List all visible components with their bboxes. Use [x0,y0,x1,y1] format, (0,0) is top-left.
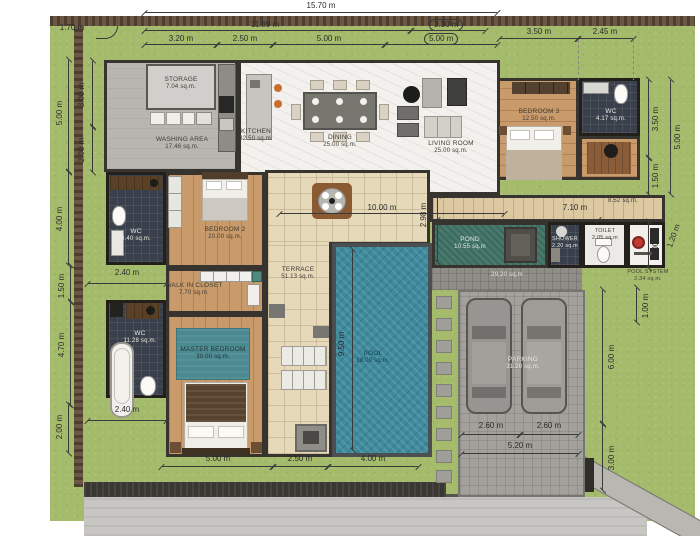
dim-top-total: 15.70 m [291,1,351,11]
gate-post [585,458,594,492]
dim-right-a: 3.50 m [651,97,661,141]
dim-wc-master-line [88,420,166,421]
stepping-stone-icon [436,296,452,309]
dim-top-wing: 3.30 m [429,19,463,31]
wardrobe-icon [247,284,260,306]
stool-icon [274,100,282,108]
dim-top-e: 3.50 m [509,27,569,37]
pillow-icon [226,181,242,190]
label-pool: POOL38.00 sq.m. [346,350,400,366]
dim-wc-mid-line [88,283,166,284]
dim-pool-line [352,250,353,450]
dim-top-f-line [578,38,633,39]
dim-wc-master: 2.40 m [97,405,157,415]
nightstand-icon [170,442,181,453]
dim-right-g-line [602,290,603,424]
wardrobe-icon [168,176,182,228]
pipe-icon [634,252,652,255]
pillow-icon [534,130,554,140]
sofa-icon [422,78,442,108]
nightstand-icon [499,126,507,135]
dim-park-a: 2.60 m [461,421,521,431]
dim-hall-w: 7.10 m [545,203,605,213]
label-shower: SHOWER2.20 sq.m [549,236,581,250]
dim-left-e-line [70,266,71,302]
armchair-icon [397,123,419,137]
dim-top-a-line [145,44,217,45]
chair-icon [310,80,324,90]
dim-right-g: 6.00 m [607,335,617,379]
pillow-icon [510,130,530,140]
stepping-stone-icon [436,318,452,331]
dim-bottom-b-line [273,466,328,467]
dim-bottom-b: 2.50 m [270,454,330,464]
stepping-stone-icon [436,340,452,353]
dim-right-b: 1.50 m [651,154,661,198]
sofa-icon [447,78,467,106]
stepping-stone-icon [436,470,452,483]
dim-hall-h-line [437,196,438,262]
dim-left-b: 5.00 m [55,91,65,135]
dim-top-f: 2.45 m [575,27,635,37]
label-master: MASTER BEDROOM30.00 sq.m. [178,346,248,362]
dim-left-g-line [68,405,69,453]
dim-top-c: 5.00 m [299,34,359,44]
dim-right-h: 3.00 m [607,436,617,480]
stepping-stone-icon [436,450,452,463]
plate-icon [312,116,319,123]
coffee-table-icon [403,86,420,103]
pillow-icon [218,426,244,438]
pump-icon [632,236,645,249]
washing-machine-icon [150,112,165,125]
dim-pool: 9.50 m [337,322,347,366]
car-windshield-icon [527,326,561,339]
plate-icon [322,203,329,210]
doormat-icon [313,326,329,338]
dim-top-main: 11.89 m [235,20,295,30]
dim-top-c-line [273,44,385,45]
dim-left-c: 2.00 m [77,128,87,172]
dim-park-b-line [520,434,578,435]
vanity-icon [583,82,609,94]
sink-icon [150,179,158,187]
dim-park-a-line [462,434,520,435]
dim-terrace-line [280,213,504,214]
dim-left-a-line [92,61,93,127]
dim-bottom-c: 4.00 m [343,454,403,464]
dim-right-d-line [648,222,649,268]
dim-left-a: 3.00 m [77,73,87,117]
dim-top-total-line [145,12,497,13]
car-rear-window-icon [472,387,506,398]
plate-icon [335,203,342,210]
toilet-icon [112,206,126,226]
dim-right-a-line [648,80,649,158]
chair-icon [291,104,301,120]
boundary-wall-bottom [84,482,446,497]
dim-park-b: 2.60 m [519,421,579,431]
label-bedroom3: BEDROOM 312.50 sq.m. [504,108,574,124]
wardrobe-icon [200,271,252,282]
toilet-icon [597,246,610,263]
car-rear-window-icon [527,387,561,398]
road [84,497,647,536]
dim-hall-h: 2.98 m [419,193,429,237]
dim-top-main-line [145,30,411,31]
nightstand-icon [251,442,262,453]
projection-line [633,40,634,80]
fence-top [50,16,695,26]
plate-icon [360,98,367,105]
chair-icon [356,80,370,90]
dim-wc-mid: 2.40 m [97,268,157,278]
stepping-stone-icon [436,362,452,375]
label-storage: STORAGE7.04 sq.m. [146,76,216,92]
label-bedroom2: BEDROOM 220.00 sq.m. [192,226,258,242]
lounger-icon [281,370,327,390]
headboard-icon [202,172,248,179]
dim-right-c-line [670,80,671,194]
washing-machine-icon [166,112,181,125]
toilet-icon [614,84,628,104]
sofa-icon [424,116,462,138]
dim-left-b-line [68,60,69,172]
dim-park-w: 5.20 m [490,441,550,451]
dim-left-d-line [68,172,69,265]
island-sink-icon [250,80,260,88]
dim-right-c: 5.00 m [673,115,683,159]
dim-left-e: 1.50 m [57,264,67,308]
floor-plan: STORAGE7.04 sq.m. WASHING AREA17.46 sq.m… [0,0,700,536]
blanket-icon [203,198,247,220]
label-hallway-area: 8.52 sq.m. [600,198,646,206]
label-wc-mid: WC8.40 sq.m. [114,228,158,244]
wardrobe-icon [512,82,570,94]
dim-top-d: 5.00 m [424,33,458,45]
label-wc-master: WC11.28 sq.m. [118,330,162,346]
chair-icon [379,104,389,120]
label-kitchen: KITCHEN32.50 sq.m. [226,128,286,144]
washing-machine-icon [182,112,195,125]
dim-left-f: 4.70 m [57,323,67,367]
projection-line [578,40,579,80]
chair-icon [333,80,347,90]
label-toilet: TOILET2.05 sq.m [585,228,625,242]
stool-icon [274,84,282,92]
dim-park-w-line [462,453,578,454]
centerpiece-icon [329,198,335,204]
dim-top-b-line [217,44,273,45]
dim-left-c-line [92,127,93,172]
pillow-icon [206,181,222,190]
dim-bottom-a-line [162,466,273,467]
dim-bottom-a: 5.00 m [188,454,248,464]
armchair-icon [397,106,419,120]
dim-top-offset-left: 1.70 m [50,23,94,33]
label-pool-system: POOL SYSTEM2.34 sq.m. [621,269,675,283]
sink-icon [146,306,155,315]
dim-top-e-line [500,38,578,39]
label-dining: DINING25.00 sq.m. [305,134,375,150]
label-living: LIVING ROOM25.00 sq.m. [416,140,486,156]
dim-left-f-line [70,302,71,405]
side-table-icon [604,144,618,158]
blanket-icon [186,384,246,422]
dim-terrace: 10.00 m [352,203,412,213]
blanket-icon [507,150,561,179]
dim-top-a: 3.20 m [151,34,211,44]
toilet-icon [140,376,156,396]
pillow-icon [188,426,214,438]
label-terrace: TERRACE51.13 sq.m. [268,266,328,282]
planter-inner-icon [511,234,530,256]
car-windshield-icon [472,326,506,339]
dim-left-d: 4.00 m [55,197,65,241]
plate-icon [336,116,343,123]
stepping-stone-icon [436,428,452,441]
plate-icon [360,116,367,123]
label-walkway-area: 29.20 sq.m [478,272,536,280]
stepping-stone-icon [436,384,452,397]
plate-icon [312,98,319,105]
label-washing: WASHING AREA17.46 sq.m. [132,136,232,152]
outdoor-pad-inner-icon [303,431,319,444]
dim-right-f: 1.00 m [641,284,651,328]
doormat-icon [269,304,285,318]
dim-right-f-line [636,288,637,322]
dim-hall-w-line [438,219,598,220]
fridge-icon [219,96,234,113]
dim-top-b: 2.50 m [215,34,275,44]
label-pond: POND10.55 sq.m [446,236,494,252]
plate-icon [336,98,343,105]
lounger-icon [281,346,327,366]
dim-bottom-c-line [328,466,418,467]
label-wc-top: WC4.17 sq.m. [588,108,634,124]
bench-icon [252,271,262,282]
plate-icon [322,192,329,199]
stepping-stone-icon [436,406,452,419]
dim-right-d: 2.00 m [651,223,661,267]
dim-right-b-line [648,158,649,194]
plate-icon [335,192,342,199]
bathtub-inner-icon [114,348,130,404]
label-parking: PARKING31.20 sq.m. [494,356,552,372]
dim-left-g: 2.00 m [55,405,65,449]
laundry-sink-icon [196,112,212,125]
dim-right-h-line [602,424,603,490]
nightstand-icon [563,126,571,135]
cabinet-icon [110,303,123,317]
